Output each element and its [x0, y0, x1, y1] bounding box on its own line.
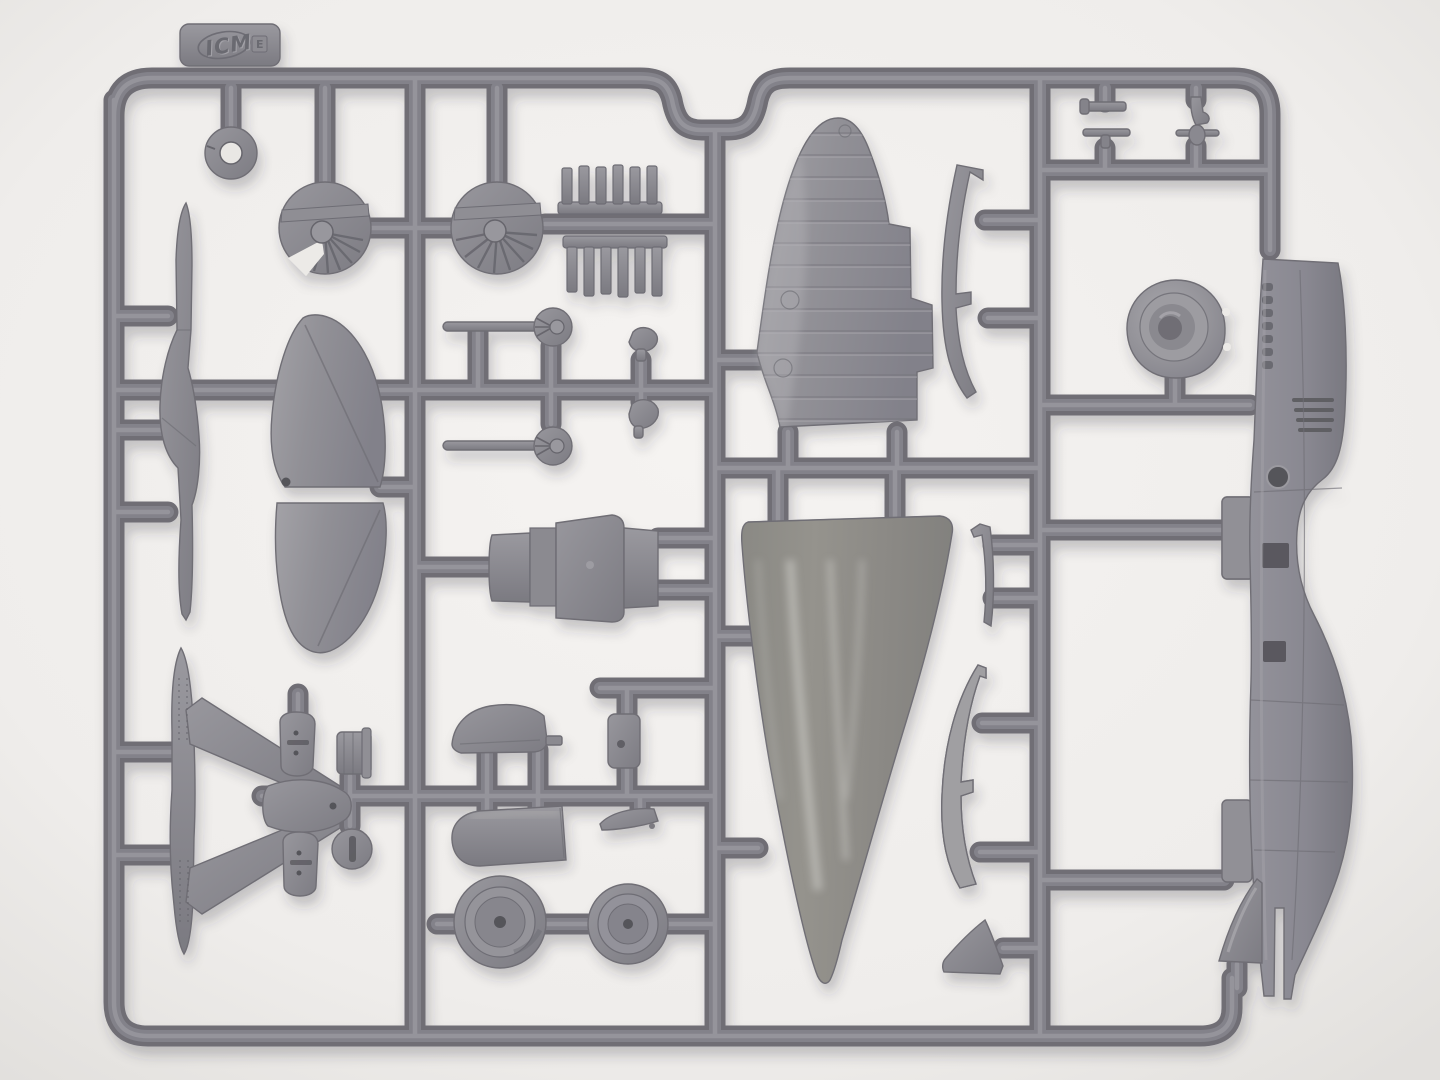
fuselage-pad-lower — [1222, 800, 1252, 882]
fuselage-porthole — [1267, 466, 1289, 488]
part-equipment-box — [608, 714, 640, 768]
part-hub-disc — [332, 829, 372, 869]
ring-hole — [220, 142, 242, 164]
mold-stamp-letter: E — [256, 38, 264, 51]
elevator-hole — [282, 478, 291, 487]
part-ring-grommet — [205, 127, 257, 179]
sprue-photo-canvas: ICM ICM E — [0, 0, 1440, 1080]
part-seat-upper — [280, 712, 315, 776]
disc-notch — [1222, 308, 1230, 316]
part-engine-cowling — [452, 806, 566, 866]
sprue-photo: Top-down photograph of a gray injection-… — [0, 0, 1440, 1080]
part-seat-lower — [283, 832, 318, 896]
fuselage-hatch-lower — [1263, 641, 1286, 662]
part-main-wheel-small — [588, 884, 668, 964]
part-main-wheel-large — [454, 876, 546, 968]
part-radial-engine-face-right — [451, 182, 543, 274]
brand-tab: ICM ICM E — [180, 24, 280, 66]
fuselage-hatch-upper — [1262, 543, 1289, 568]
disc-notch — [1223, 343, 1231, 351]
part-drum — [337, 728, 371, 778]
